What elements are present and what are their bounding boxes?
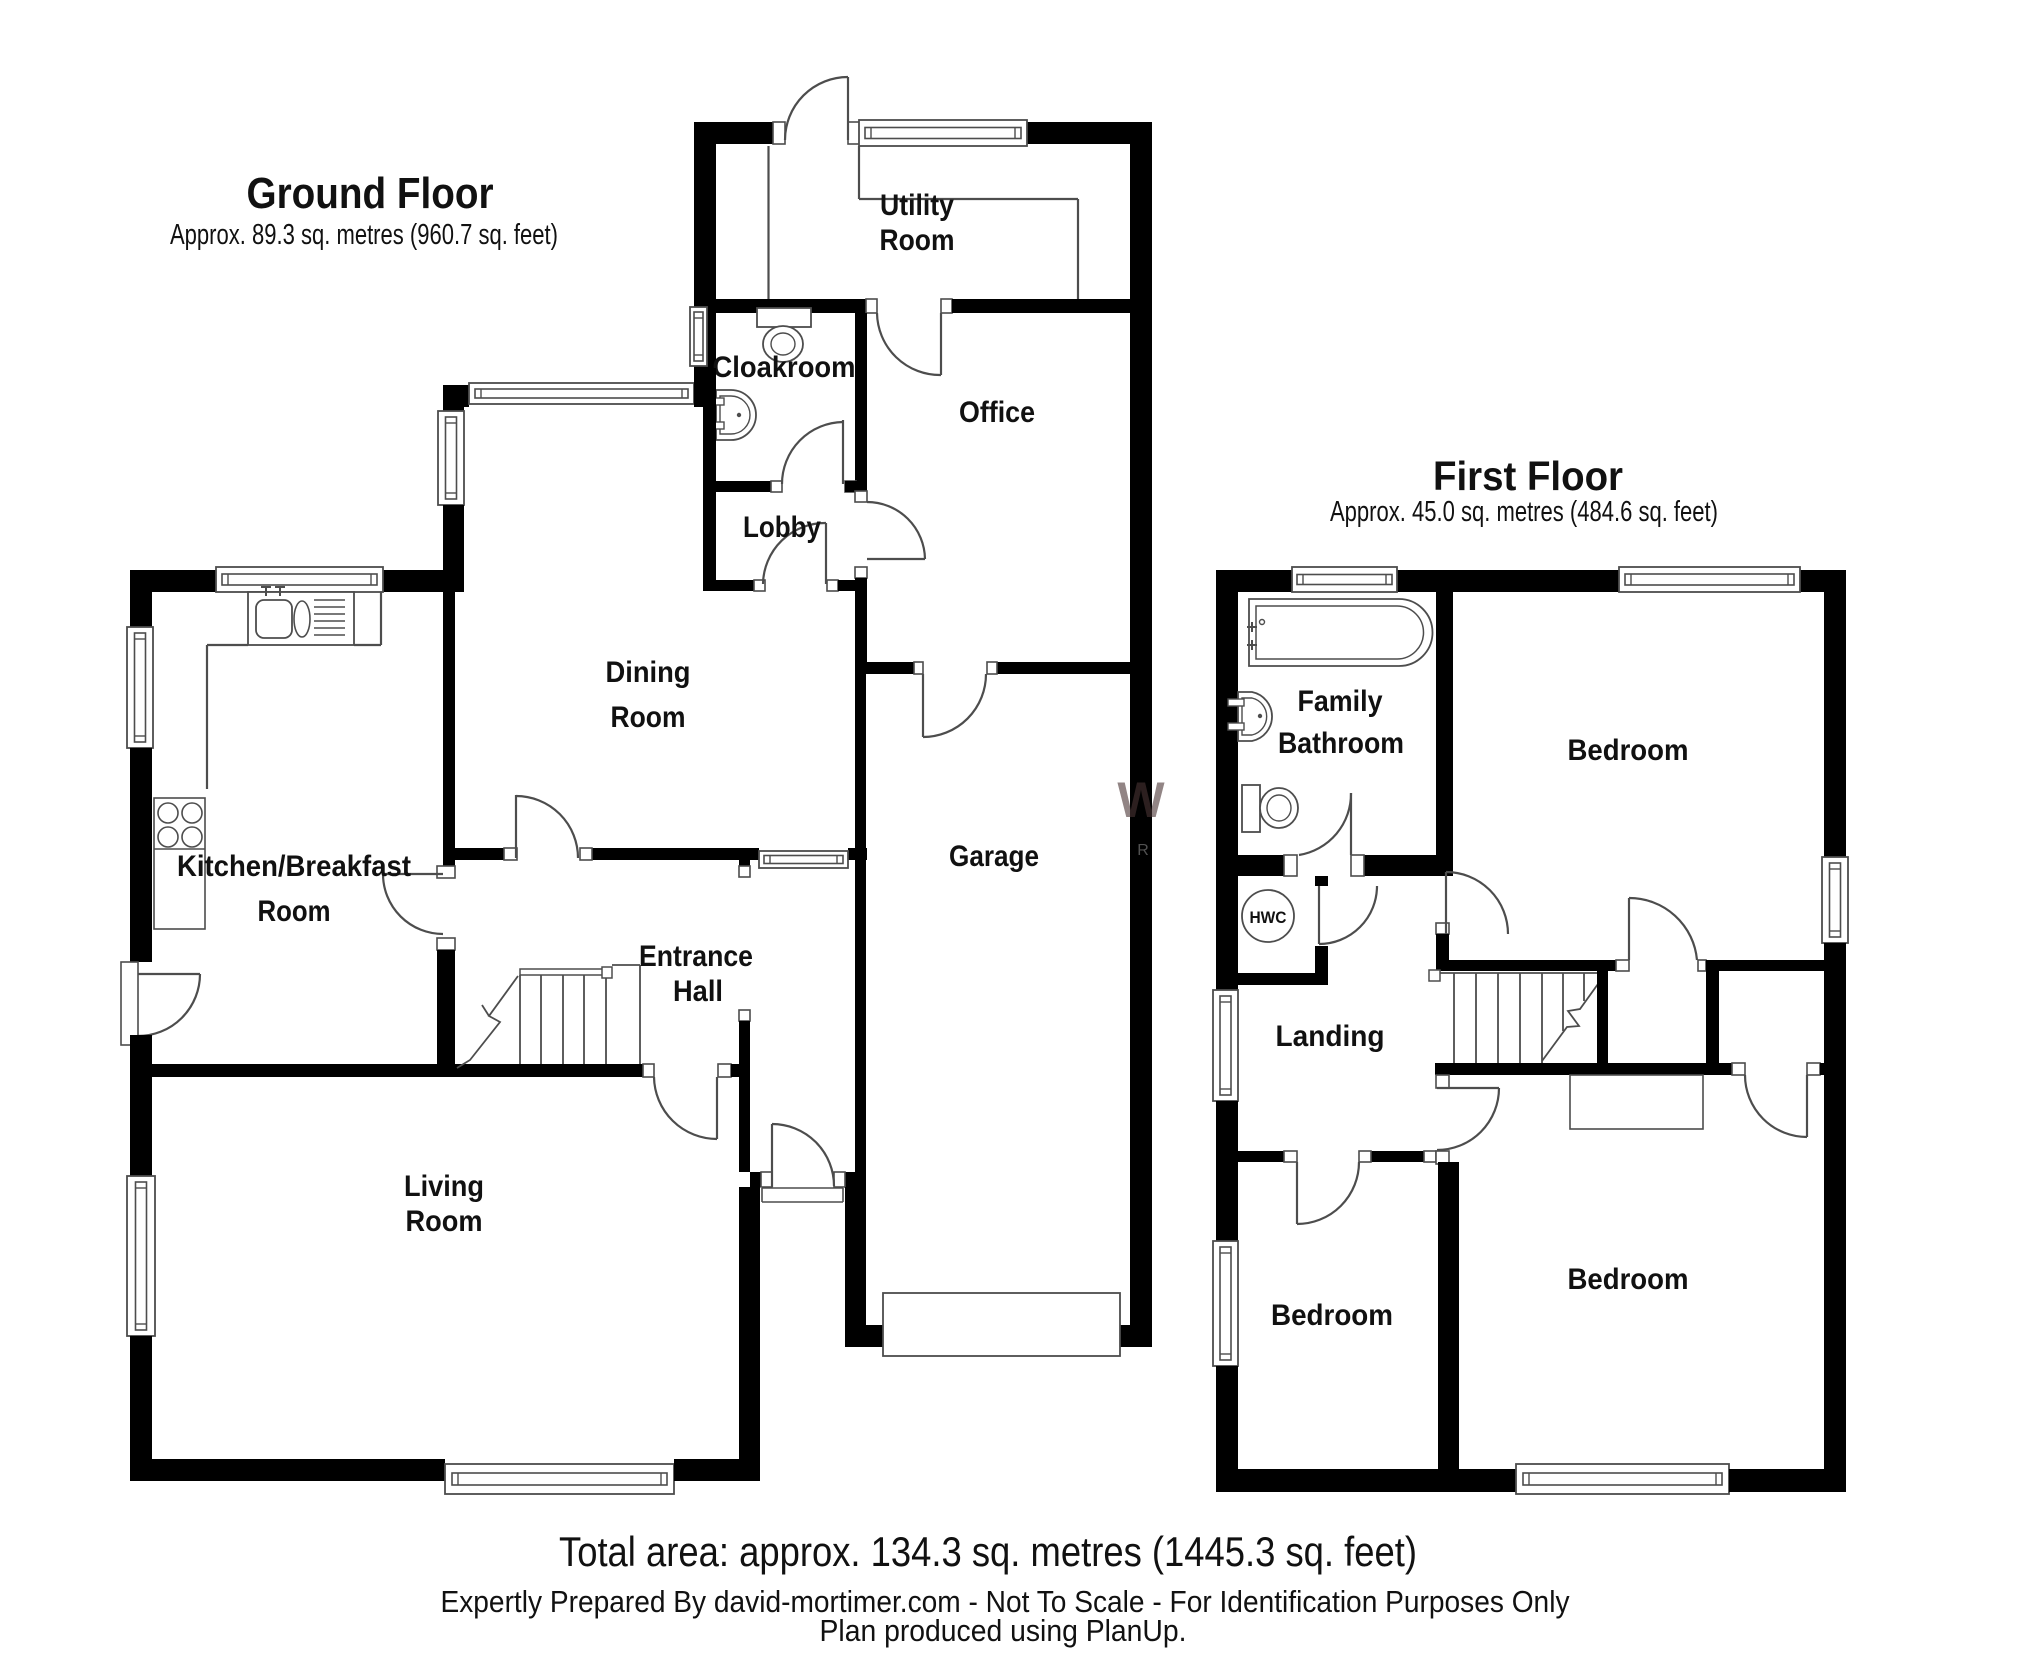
svg-text:Bathroom: Bathroom	[1278, 727, 1404, 760]
svg-text:Utility: Utility	[880, 189, 954, 222]
svg-text:Kitchen/Breakfast: Kitchen/Breakfast	[177, 850, 411, 883]
svg-text:Approx. 45.0 sq. metres (484.6: Approx. 45.0 sq. metres (484.6 sq. feet)	[1330, 496, 1718, 528]
svg-text:Total area: approx. 134.3 sq.: Total area: approx. 134.3 sq. metres (14…	[559, 1528, 1417, 1575]
svg-text:Room: Room	[406, 1205, 483, 1238]
svg-text:R: R	[1137, 842, 1149, 859]
svg-text:First Floor: First Floor	[1433, 453, 1623, 499]
svg-text:W: W	[1117, 772, 1165, 828]
svg-text:Living: Living	[404, 1170, 484, 1203]
svg-text:Lobby: Lobby	[743, 511, 821, 544]
svg-text:Landing: Landing	[1276, 1020, 1385, 1053]
svg-text:Hall: Hall	[673, 975, 723, 1008]
svg-text:Entrance: Entrance	[639, 940, 753, 973]
svg-text:Bedroom: Bedroom	[1271, 1299, 1393, 1332]
svg-text:Office: Office	[959, 396, 1035, 429]
svg-text:Room: Room	[880, 224, 955, 257]
svg-text:Cloakroom: Cloakroom	[713, 351, 856, 384]
svg-text:Bedroom: Bedroom	[1568, 734, 1689, 767]
svg-text:HWC: HWC	[1250, 908, 1287, 927]
svg-text:Bedroom: Bedroom	[1568, 1263, 1689, 1296]
svg-text:Approx. 89.3 sq. metres (960.7: Approx. 89.3 sq. metres (960.7 sq. feet)	[170, 219, 558, 251]
svg-text:Dining: Dining	[606, 656, 691, 689]
svg-text:Family: Family	[1298, 685, 1383, 718]
svg-text:Garage: Garage	[949, 840, 1039, 873]
svg-text:Room: Room	[611, 701, 686, 734]
svg-text:Plan produced using PlanUp.: Plan produced using PlanUp.	[820, 1613, 1187, 1648]
svg-text:Room: Room	[258, 895, 331, 928]
svg-text:Ground Floor: Ground Floor	[247, 169, 494, 218]
